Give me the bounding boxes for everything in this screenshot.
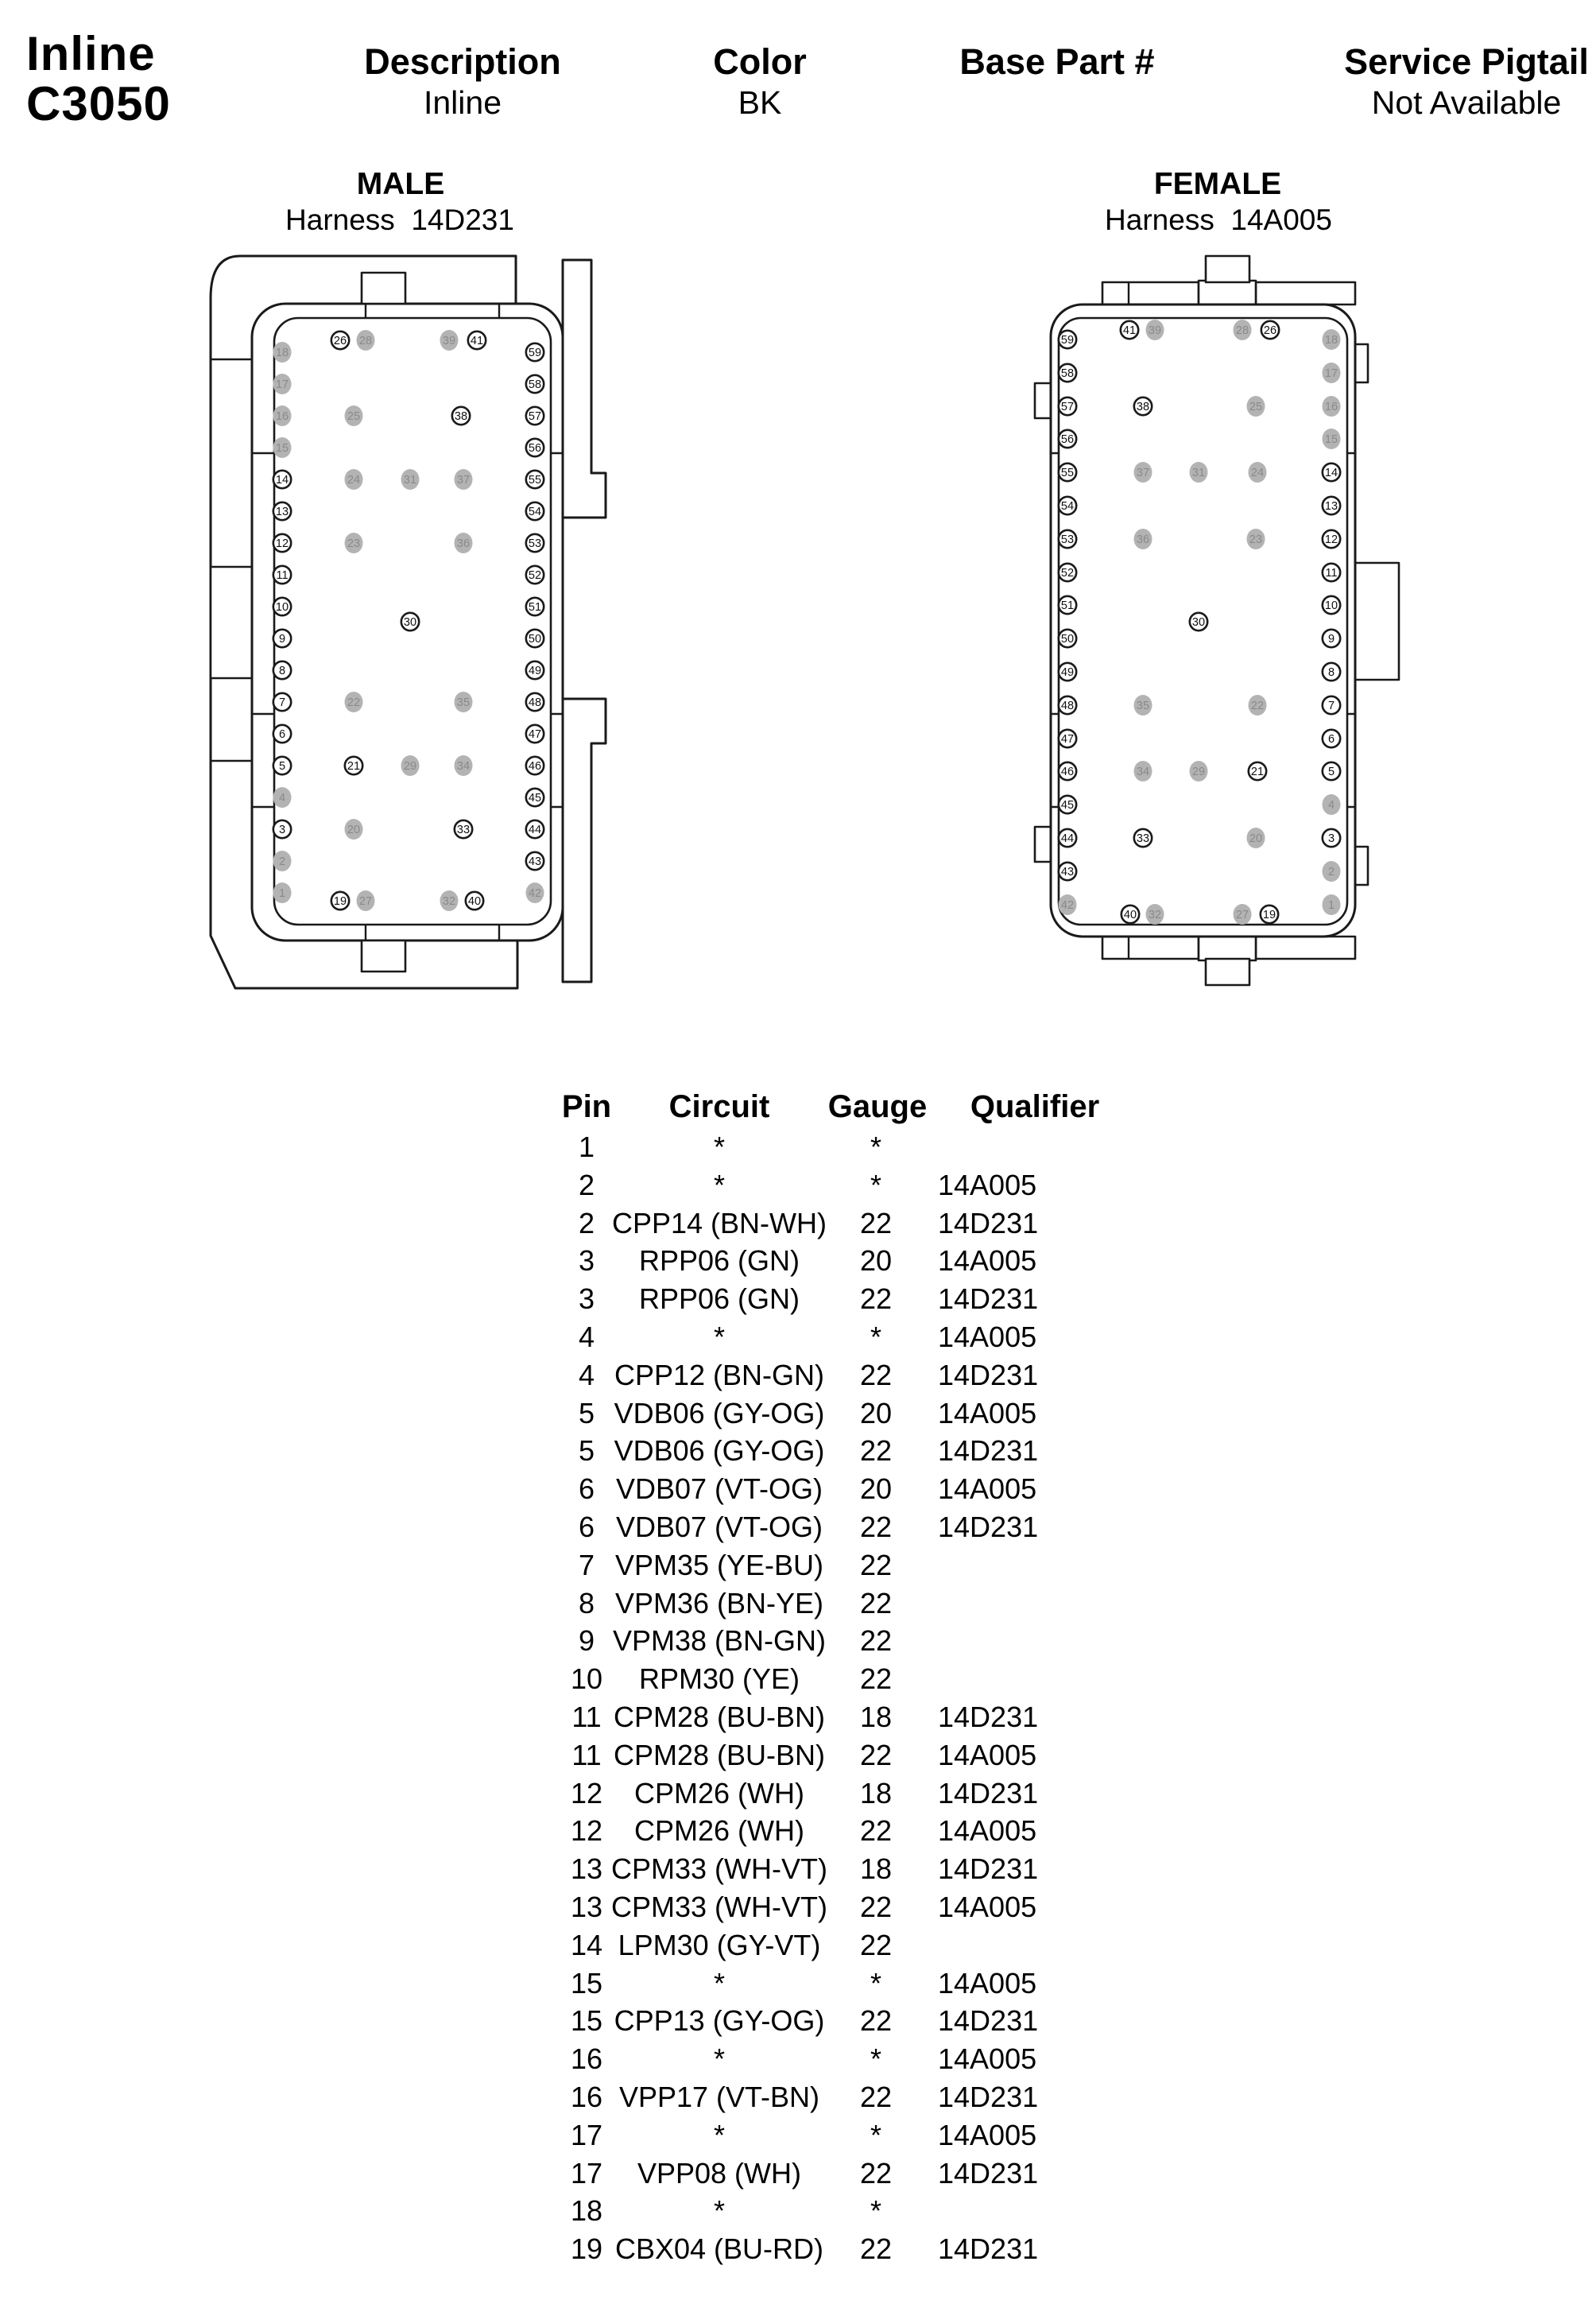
pin-number-39: 39 bbox=[1149, 324, 1161, 337]
pin-number-13: 13 bbox=[276, 506, 289, 518]
male-latch-rail-top bbox=[563, 260, 606, 518]
circuit-cell: * bbox=[714, 1965, 725, 2003]
pin-cell: 3 bbox=[579, 1280, 595, 1318]
male-title: MALE bbox=[357, 167, 445, 202]
gauge-cell: * bbox=[870, 2040, 881, 2078]
gauge-cell: 22 bbox=[860, 1812, 892, 1850]
pin-number-35: 35 bbox=[1137, 700, 1149, 712]
pin-number-36: 36 bbox=[457, 537, 470, 550]
gauge-cell: * bbox=[870, 1318, 881, 1356]
female-left-bump-top bbox=[1035, 383, 1051, 418]
table-row: 3RPP06 (GN)2014A005 bbox=[0, 1242, 1596, 1280]
pin-cell: 11 bbox=[571, 1736, 601, 1775]
table-row: 5VDB06 (GY-OG)2014A005 bbox=[0, 1394, 1596, 1433]
gauge-cell: 18 bbox=[860, 1698, 892, 1736]
pin-number-3: 3 bbox=[1328, 832, 1335, 845]
table-row: 15CPP13 (GY-OG)2214D231 bbox=[0, 2002, 1596, 2040]
color-value: BK bbox=[738, 84, 782, 122]
circuit-cell: * bbox=[714, 1128, 725, 1166]
pin-cell: 4 bbox=[579, 1356, 595, 1394]
pin-number-16: 16 bbox=[1325, 401, 1338, 413]
qualifier-cell: 14A005 bbox=[938, 1470, 1036, 1508]
gauge-cell: 20 bbox=[860, 1242, 892, 1280]
pin-number-49: 49 bbox=[1061, 666, 1074, 679]
pin-number-28: 28 bbox=[1236, 324, 1249, 337]
pin-cell: 9 bbox=[579, 1622, 595, 1660]
pin-number-56: 56 bbox=[1061, 433, 1074, 446]
circuit-cell: * bbox=[714, 2040, 725, 2078]
pin-number-48: 48 bbox=[529, 696, 541, 709]
circuit-cell: LPM30 (GY-VT) bbox=[618, 1926, 821, 1965]
circuit-cell: * bbox=[714, 1166, 725, 1204]
pin-number-12: 12 bbox=[276, 537, 289, 550]
pin-number-23: 23 bbox=[1249, 533, 1262, 546]
pin-number-29: 29 bbox=[1192, 766, 1205, 778]
table-row: 5VDB06 (GY-OG)2214D231 bbox=[0, 1432, 1596, 1470]
gauge-cell: * bbox=[870, 1166, 881, 1204]
pin-number-34: 34 bbox=[457, 760, 470, 773]
circuit-cell: VPM38 (BN-GN) bbox=[613, 1622, 826, 1660]
pin-number-19: 19 bbox=[1263, 909, 1276, 921]
gauge-cell: 22 bbox=[860, 2002, 892, 2040]
male-connector-diagram: 1817161514131211109876543215958575655545… bbox=[199, 235, 612, 998]
pin-number-47: 47 bbox=[1061, 733, 1074, 746]
table-row: 3RPP06 (GN)2214D231 bbox=[0, 1280, 1596, 1318]
service-pigtail-value: Not Available bbox=[1372, 84, 1562, 122]
pin-number-2: 2 bbox=[1328, 866, 1335, 879]
pin-number-24: 24 bbox=[1251, 467, 1264, 479]
table-row: 2**14A005 bbox=[0, 1166, 1596, 1204]
pin-number-26: 26 bbox=[1264, 324, 1276, 337]
circuit-cell: * bbox=[714, 2192, 725, 2230]
qualifier-cell: 14D231 bbox=[938, 2230, 1038, 2268]
pin-number-19: 19 bbox=[334, 895, 347, 908]
pin-number-35: 35 bbox=[457, 696, 470, 709]
gauge-cell: * bbox=[870, 1128, 881, 1166]
pin-number-29: 29 bbox=[404, 760, 416, 773]
pin-number-13: 13 bbox=[1325, 500, 1338, 513]
pin-cell: 5 bbox=[579, 1432, 595, 1470]
gauge-cell: 22 bbox=[860, 1546, 892, 1584]
pin-number-15: 15 bbox=[1325, 433, 1338, 446]
pin-number-49: 49 bbox=[529, 665, 541, 677]
pin-number-40: 40 bbox=[1124, 909, 1137, 921]
pin-number-25: 25 bbox=[347, 410, 360, 423]
pin-cell: 6 bbox=[579, 1470, 595, 1508]
pin-number-4: 4 bbox=[1328, 799, 1335, 812]
circuit-cell: RPP06 (GN) bbox=[639, 1242, 800, 1280]
qualifier-cell: 14D231 bbox=[938, 1280, 1038, 1318]
male-harness: Harness 14D231 bbox=[285, 204, 514, 237]
male-top-index-tab bbox=[362, 273, 405, 304]
qualifier-cell: 14D231 bbox=[938, 1356, 1038, 1394]
circuit-cell: CPP13 (GY-OG) bbox=[614, 2002, 825, 2040]
table-row: 15**14A005 bbox=[0, 1965, 1596, 2003]
pin-number-58: 58 bbox=[529, 378, 541, 391]
pin-cell: 12 bbox=[571, 1775, 602, 1813]
pin-number-25: 25 bbox=[1249, 401, 1262, 413]
female-top-rib-right bbox=[1256, 282, 1355, 304]
service-pigtail-header: Service Pigtail bbox=[1344, 41, 1589, 83]
table-row: 17VPP08 (WH)2214D231 bbox=[0, 2155, 1596, 2193]
pin-cell: 8 bbox=[579, 1584, 595, 1623]
pin-number-17: 17 bbox=[1325, 367, 1338, 380]
pin-cell: 17 bbox=[571, 2116, 602, 2155]
pin-number-5: 5 bbox=[1328, 766, 1335, 778]
circuit-cell: CPM26 (WH) bbox=[634, 1775, 804, 1813]
qualifier-cell: 14A005 bbox=[938, 1394, 1036, 1433]
pin-cell: 17 bbox=[571, 2155, 602, 2193]
pin-number-28: 28 bbox=[359, 335, 372, 347]
gauge-cell: 22 bbox=[860, 1508, 892, 1546]
female-right-bump-bottom bbox=[1355, 847, 1368, 885]
pin-number-37: 37 bbox=[457, 474, 470, 487]
pin-number-18: 18 bbox=[1325, 334, 1338, 347]
qualifier-cell: 14D231 bbox=[938, 2002, 1038, 2040]
pin-cell: 15 bbox=[571, 2002, 602, 2040]
table-header-gauge: Gauge bbox=[828, 1089, 927, 1125]
gauge-cell: 22 bbox=[860, 2230, 892, 2268]
pin-number-55: 55 bbox=[1061, 467, 1074, 479]
pin-cell: 18 bbox=[571, 2192, 602, 2230]
pin-cell: 19 bbox=[571, 2230, 602, 2268]
pin-cell: 1 bbox=[579, 1128, 595, 1166]
male-bottom-index-tab bbox=[362, 941, 405, 972]
circuit-cell: VPP08 (WH) bbox=[637, 2155, 801, 2193]
table-row: 11CPM28 (BU-BN)1814D231 bbox=[0, 1698, 1596, 1736]
pin-number-5: 5 bbox=[279, 760, 285, 773]
pin-number-4: 4 bbox=[279, 792, 285, 805]
pin-cell: 11 bbox=[571, 1698, 601, 1736]
pin-number-2: 2 bbox=[279, 855, 285, 868]
qualifier-cell: 14A005 bbox=[938, 2116, 1036, 2155]
table-row: 1** bbox=[0, 1128, 1596, 1166]
pin-number-26: 26 bbox=[334, 335, 347, 347]
pin-number-38: 38 bbox=[455, 410, 467, 423]
part-id-line2: C3050 bbox=[26, 79, 171, 129]
female-right-bump-top bbox=[1355, 344, 1368, 382]
pin-cell: 10 bbox=[571, 1660, 602, 1698]
pin-number-9: 9 bbox=[1328, 633, 1335, 646]
pin-number-54: 54 bbox=[529, 506, 541, 518]
pin-number-21: 21 bbox=[1251, 766, 1264, 778]
pin-number-20: 20 bbox=[1249, 832, 1262, 845]
table-row: 18** bbox=[0, 2192, 1596, 2230]
pin-number-43: 43 bbox=[1061, 866, 1074, 879]
circuit-cell: RPP06 (GN) bbox=[639, 1280, 800, 1318]
qualifier-cell: 14A005 bbox=[938, 1318, 1036, 1356]
gauge-cell: 22 bbox=[860, 1622, 892, 1660]
table-row: 13CPM33 (WH-VT)1814D231 bbox=[0, 1850, 1596, 1888]
pin-number-44: 44 bbox=[1061, 832, 1074, 845]
table-header-pin: Pin bbox=[562, 1089, 611, 1125]
female-title: FEMALE bbox=[1154, 167, 1281, 202]
pin-number-1: 1 bbox=[279, 887, 285, 900]
female-right-latch-tab bbox=[1355, 563, 1399, 680]
pin-number-23: 23 bbox=[347, 537, 360, 550]
pin-number-30: 30 bbox=[404, 616, 416, 629]
pin-number-59: 59 bbox=[1061, 334, 1074, 347]
male-left-tab bbox=[211, 567, 253, 678]
female-bottom-rib-right bbox=[1256, 937, 1355, 959]
gauge-cell: * bbox=[870, 2116, 881, 2155]
part-id-line1: Inline bbox=[26, 29, 171, 79]
pin-number-24: 24 bbox=[347, 474, 360, 487]
pin-number-31: 31 bbox=[404, 474, 416, 487]
circuit-cell: CPM28 (BU-BN) bbox=[614, 1736, 825, 1775]
pin-number-3: 3 bbox=[279, 824, 285, 836]
pin-number-15: 15 bbox=[276, 442, 289, 455]
pin-number-22: 22 bbox=[1251, 700, 1264, 712]
table-header-qualifier: Qualifier bbox=[970, 1089, 1099, 1125]
pin-number-53: 53 bbox=[529, 537, 541, 550]
pin-number-8: 8 bbox=[1328, 666, 1335, 679]
gauge-cell: 22 bbox=[860, 1280, 892, 1318]
qualifier-cell: 14D231 bbox=[938, 1698, 1038, 1736]
pin-number-40: 40 bbox=[468, 895, 481, 908]
circuit-cell: VPM35 (YE-BU) bbox=[615, 1546, 823, 1584]
table-row: 2CPP14 (BN-WH)2214D231 bbox=[0, 1204, 1596, 1243]
gauge-cell: 22 bbox=[860, 1204, 892, 1243]
gauge-cell: 18 bbox=[860, 1775, 892, 1813]
pin-number-14: 14 bbox=[1325, 467, 1338, 479]
qualifier-cell: 14A005 bbox=[938, 1888, 1036, 1926]
pin-number-51: 51 bbox=[1061, 599, 1074, 612]
pin-number-18: 18 bbox=[276, 347, 289, 359]
pin-number-50: 50 bbox=[529, 633, 541, 646]
qualifier-cell: 14D231 bbox=[938, 1508, 1038, 1546]
pin-number-8: 8 bbox=[279, 665, 285, 677]
table-header-circuit: Circuit bbox=[669, 1089, 770, 1125]
pin-number-46: 46 bbox=[529, 760, 541, 773]
pin-number-33: 33 bbox=[457, 824, 470, 836]
female-connector-diagram: 5958575655545352515049484746454443421817… bbox=[1017, 235, 1411, 998]
table-row: 6VDB07 (VT-OG)2014A005 bbox=[0, 1470, 1596, 1508]
circuit-cell: CBX04 (BU-RD) bbox=[615, 2230, 823, 2268]
circuit-cell: CPM33 (WH-VT) bbox=[611, 1850, 827, 1888]
female-bottom-tab-base bbox=[1199, 935, 1256, 960]
pin-number-47: 47 bbox=[529, 728, 541, 741]
pin-cell: 2 bbox=[579, 1204, 595, 1243]
pin-number-31: 31 bbox=[1192, 467, 1205, 479]
pin-number-20: 20 bbox=[347, 824, 360, 836]
pin-number-10: 10 bbox=[276, 601, 289, 614]
table-row: 16VPP17 (VT-BN)2214D231 bbox=[0, 2078, 1596, 2116]
pin-number-32: 32 bbox=[443, 895, 455, 908]
female-top-rib-left bbox=[1102, 282, 1199, 304]
table-row: 13CPM33 (WH-VT)2214A005 bbox=[0, 1888, 1596, 1926]
pin-number-50: 50 bbox=[1061, 633, 1074, 646]
gauge-cell: * bbox=[870, 2192, 881, 2230]
pin-number-21: 21 bbox=[347, 760, 360, 773]
pin-number-43: 43 bbox=[529, 855, 541, 868]
circuit-cell: VPP17 (VT-BN) bbox=[619, 2078, 819, 2116]
pin-number-39: 39 bbox=[443, 335, 455, 347]
pin-cell: 13 bbox=[571, 1850, 602, 1888]
table-row: 12CPM26 (WH)2214A005 bbox=[0, 1812, 1596, 1850]
pin-number-41: 41 bbox=[1123, 324, 1136, 337]
pin-cell: 14 bbox=[571, 1926, 602, 1965]
gauge-cell: 20 bbox=[860, 1394, 892, 1433]
pin-cell: 13 bbox=[571, 1888, 602, 1926]
female-bottom-rib-left bbox=[1102, 937, 1199, 959]
female-top-tab-stem bbox=[1206, 256, 1249, 282]
pin-number-11: 11 bbox=[1325, 567, 1337, 580]
pin-number-7: 7 bbox=[279, 696, 285, 709]
part-id: Inline C3050 bbox=[26, 29, 171, 129]
pin-number-45: 45 bbox=[529, 792, 541, 805]
table-row: 16**14A005 bbox=[0, 2040, 1596, 2078]
circuit-cell: * bbox=[714, 2116, 725, 2155]
qualifier-cell: 14A005 bbox=[938, 2040, 1036, 2078]
pin-number-27: 27 bbox=[1236, 909, 1249, 921]
pin-number-9: 9 bbox=[279, 633, 285, 646]
gauge-cell: 22 bbox=[860, 1356, 892, 1394]
qualifier-cell: 14A005 bbox=[938, 1736, 1036, 1775]
pin-number-45: 45 bbox=[1061, 799, 1074, 812]
circuit-cell: CPM28 (BU-BN) bbox=[614, 1698, 825, 1736]
pin-cell: 12 bbox=[571, 1812, 602, 1850]
pin-number-1: 1 bbox=[1328, 899, 1335, 912]
pin-cell: 15 bbox=[571, 1965, 602, 2003]
female-left-bump-bottom bbox=[1035, 827, 1051, 862]
pin-number-51: 51 bbox=[529, 601, 541, 614]
table-row: 19CBX04 (BU-RD)2214D231 bbox=[0, 2230, 1596, 2268]
qualifier-cell: 14A005 bbox=[938, 1965, 1036, 2003]
circuit-cell: VPM36 (BN-YE) bbox=[615, 1584, 823, 1623]
gauge-cell: 22 bbox=[860, 1660, 892, 1698]
qualifier-cell: 14A005 bbox=[938, 1166, 1036, 1204]
pin-number-41: 41 bbox=[471, 335, 483, 347]
female-top-tab-base bbox=[1199, 281, 1256, 306]
pin-number-6: 6 bbox=[1328, 733, 1335, 746]
pin-number-17: 17 bbox=[276, 378, 289, 391]
table-row: 4CPP12 (BN-GN)2214D231 bbox=[0, 1356, 1596, 1394]
table-row: 8VPM36 (BN-YE)22 bbox=[0, 1584, 1596, 1623]
pin-cell: 7 bbox=[579, 1546, 595, 1584]
gauge-cell: 22 bbox=[860, 2155, 892, 2193]
qualifier-cell: 14D231 bbox=[938, 2155, 1038, 2193]
qualifier-cell: 14A005 bbox=[938, 1812, 1036, 1850]
base-part-header: Base Part # bbox=[959, 41, 1154, 83]
pin-number-34: 34 bbox=[1137, 766, 1149, 778]
pin-number-42: 42 bbox=[529, 887, 541, 900]
pin-cell: 3 bbox=[579, 1242, 595, 1280]
qualifier-cell: 14D231 bbox=[938, 1204, 1038, 1243]
circuit-cell: VDB07 (VT-OG) bbox=[616, 1470, 823, 1508]
pin-number-22: 22 bbox=[347, 696, 360, 709]
circuit-cell: RPM30 (YE) bbox=[639, 1660, 800, 1698]
table-row: 9VPM38 (BN-GN)22 bbox=[0, 1622, 1596, 1660]
pin-number-46: 46 bbox=[1061, 766, 1074, 778]
gauge-cell: * bbox=[870, 1965, 881, 2003]
circuit-cell: CPP12 (BN-GN) bbox=[614, 1356, 824, 1394]
male-latch-rail-bottom bbox=[563, 699, 606, 982]
qualifier-cell: 14A005 bbox=[938, 1242, 1036, 1280]
circuit-cell: CPM33 (WH-VT) bbox=[611, 1888, 827, 1926]
pin-number-7: 7 bbox=[1328, 700, 1335, 712]
gauge-cell: 22 bbox=[860, 1736, 892, 1775]
pin-cell: 16 bbox=[571, 2078, 602, 2116]
pin-number-27: 27 bbox=[359, 895, 372, 908]
pin-number-11: 11 bbox=[276, 569, 288, 582]
pin-number-57: 57 bbox=[1061, 401, 1074, 413]
pin-number-44: 44 bbox=[529, 824, 541, 836]
pin-number-37: 37 bbox=[1137, 467, 1149, 479]
pin-number-6: 6 bbox=[279, 728, 285, 741]
circuit-cell: VDB06 (GY-OG) bbox=[614, 1432, 825, 1470]
pin-number-52: 52 bbox=[1061, 567, 1074, 580]
female-bottom-tab-stem bbox=[1206, 959, 1249, 985]
pin-number-56: 56 bbox=[529, 442, 541, 455]
pin-number-57: 57 bbox=[529, 410, 541, 423]
table-row: 6VDB07 (VT-OG)2214D231 bbox=[0, 1508, 1596, 1546]
qualifier-cell: 14D231 bbox=[938, 1432, 1038, 1470]
circuit-cell: VDB06 (GY-OG) bbox=[614, 1394, 825, 1433]
circuit-cell: CPM26 (WH) bbox=[634, 1812, 804, 1850]
qualifier-cell: 14D231 bbox=[938, 1850, 1038, 1888]
female-harness: Harness 14A005 bbox=[1105, 204, 1332, 237]
table-row: 11CPM28 (BU-BN)2214A005 bbox=[0, 1736, 1596, 1775]
description-value: Inline bbox=[424, 84, 502, 122]
pin-number-38: 38 bbox=[1137, 401, 1149, 413]
pin-cell: 4 bbox=[579, 1318, 595, 1356]
gauge-cell: 22 bbox=[860, 1432, 892, 1470]
gauge-cell: 18 bbox=[860, 1850, 892, 1888]
table-row: 17**14A005 bbox=[0, 2116, 1596, 2155]
table-row: 12CPM26 (WH)1814D231 bbox=[0, 1775, 1596, 1813]
pin-number-52: 52 bbox=[529, 569, 541, 582]
pin-cell: 6 bbox=[579, 1508, 595, 1546]
pin-number-16: 16 bbox=[276, 410, 289, 423]
qualifier-cell: 14D231 bbox=[938, 2078, 1038, 2116]
pin-number-53: 53 bbox=[1061, 533, 1074, 546]
pin-number-12: 12 bbox=[1325, 533, 1338, 546]
pin-number-32: 32 bbox=[1149, 909, 1161, 921]
color-header: Color bbox=[713, 41, 807, 83]
pin-cell: 5 bbox=[579, 1394, 595, 1433]
circuit-cell: CPP14 (BN-WH) bbox=[612, 1204, 827, 1243]
pin-cell: 2 bbox=[579, 1166, 595, 1204]
pin-number-55: 55 bbox=[529, 474, 541, 487]
pin-number-30: 30 bbox=[1192, 616, 1205, 629]
pin-number-33: 33 bbox=[1137, 832, 1149, 845]
pin-number-10: 10 bbox=[1325, 599, 1338, 612]
table-row: 7VPM35 (YE-BU)22 bbox=[0, 1546, 1596, 1584]
gauge-cell: 20 bbox=[860, 1470, 892, 1508]
table-row: 4**14A005 bbox=[0, 1318, 1596, 1356]
gauge-cell: 22 bbox=[860, 1926, 892, 1965]
pin-number-59: 59 bbox=[529, 347, 541, 359]
pin-number-48: 48 bbox=[1061, 700, 1074, 712]
pin-number-58: 58 bbox=[1061, 367, 1074, 380]
gauge-cell: 22 bbox=[860, 2078, 892, 2116]
description-header: Description bbox=[364, 41, 561, 83]
pin-number-54: 54 bbox=[1061, 500, 1074, 513]
pin-number-36: 36 bbox=[1137, 533, 1149, 546]
table-row: 10RPM30 (YE)22 bbox=[0, 1660, 1596, 1698]
gauge-cell: 22 bbox=[860, 1888, 892, 1926]
pin-cell: 16 bbox=[571, 2040, 602, 2078]
pin-number-42: 42 bbox=[1061, 899, 1074, 912]
circuit-cell: * bbox=[714, 1318, 725, 1356]
pin-number-14: 14 bbox=[276, 474, 289, 487]
gauge-cell: 22 bbox=[860, 1584, 892, 1623]
table-row: 14LPM30 (GY-VT)22 bbox=[0, 1926, 1596, 1965]
circuit-cell: VDB07 (VT-OG) bbox=[616, 1508, 823, 1546]
qualifier-cell: 14D231 bbox=[938, 1775, 1038, 1813]
